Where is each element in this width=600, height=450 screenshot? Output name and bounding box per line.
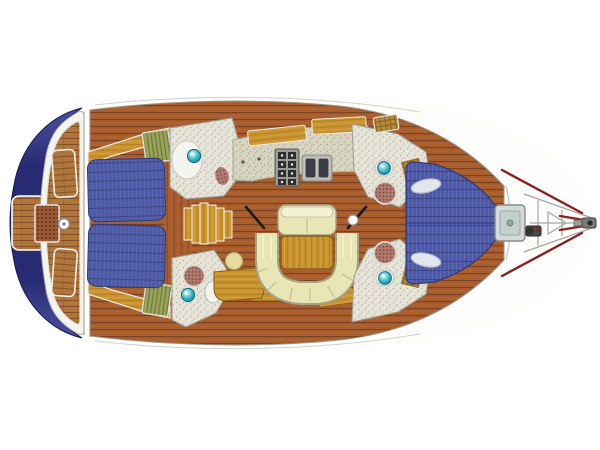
sink [181,288,194,301]
stair-tread [224,211,232,238]
yacht-layout-plan [0,0,600,450]
cockpit-bench-port [51,149,77,197]
salon-table [281,236,333,269]
sink [187,149,200,162]
salon-bench [278,205,336,235]
aft-head-port [170,118,240,199]
stair-tread [208,205,216,243]
mast-post [348,215,358,225]
stair-tread [184,208,192,240]
stair-tread [216,208,224,241]
deck-hatch [495,205,525,241]
nav-seat [226,253,243,270]
shower-rug [374,242,396,264]
sink [376,270,394,286]
sink [375,160,393,176]
shower-rug [184,266,205,287]
cockpit-grate [35,205,59,242]
steering-wheel [58,218,69,229]
windlass [526,226,541,236]
aft-berth-starboard [87,224,166,288]
locker-hatch-wood [373,114,399,133]
galley-sink [302,155,332,181]
layout-canvas [0,0,600,450]
stair-tread [192,205,200,243]
counter-drain [241,160,244,163]
stove [275,149,299,186]
stair-tread [200,203,208,244]
aft-berth-port [87,158,166,222]
counter-drain [257,157,260,160]
shower-rug [374,182,396,204]
cockpit-bench-starboard [51,248,77,296]
